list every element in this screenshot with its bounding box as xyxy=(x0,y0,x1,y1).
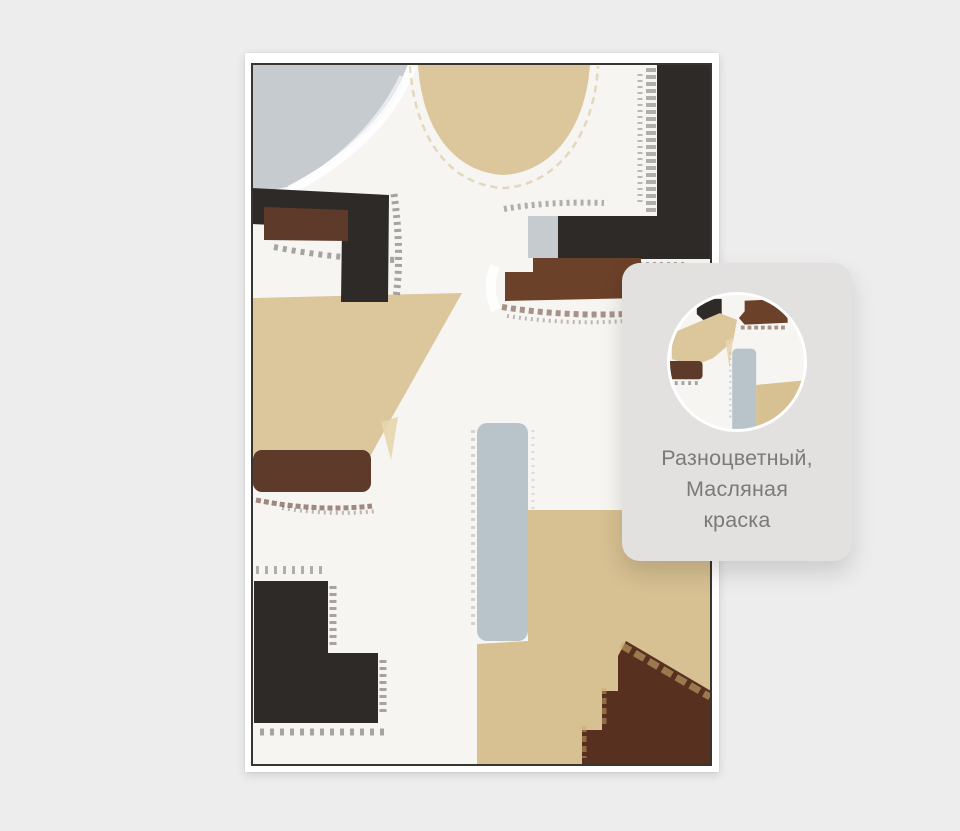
detail-zoom-image xyxy=(670,295,804,429)
material-line-3: краска xyxy=(661,505,813,536)
material-label: Разноцветный, Масляная краска xyxy=(661,443,813,536)
detail-zoom-circle xyxy=(667,292,807,432)
page: Разноцветный, Масляная краска xyxy=(0,0,960,831)
material-info-card: Разноцветный, Масляная краска xyxy=(622,263,852,561)
material-line-1: Разноцветный, xyxy=(661,443,813,474)
material-line-2: Масляная xyxy=(661,474,813,505)
